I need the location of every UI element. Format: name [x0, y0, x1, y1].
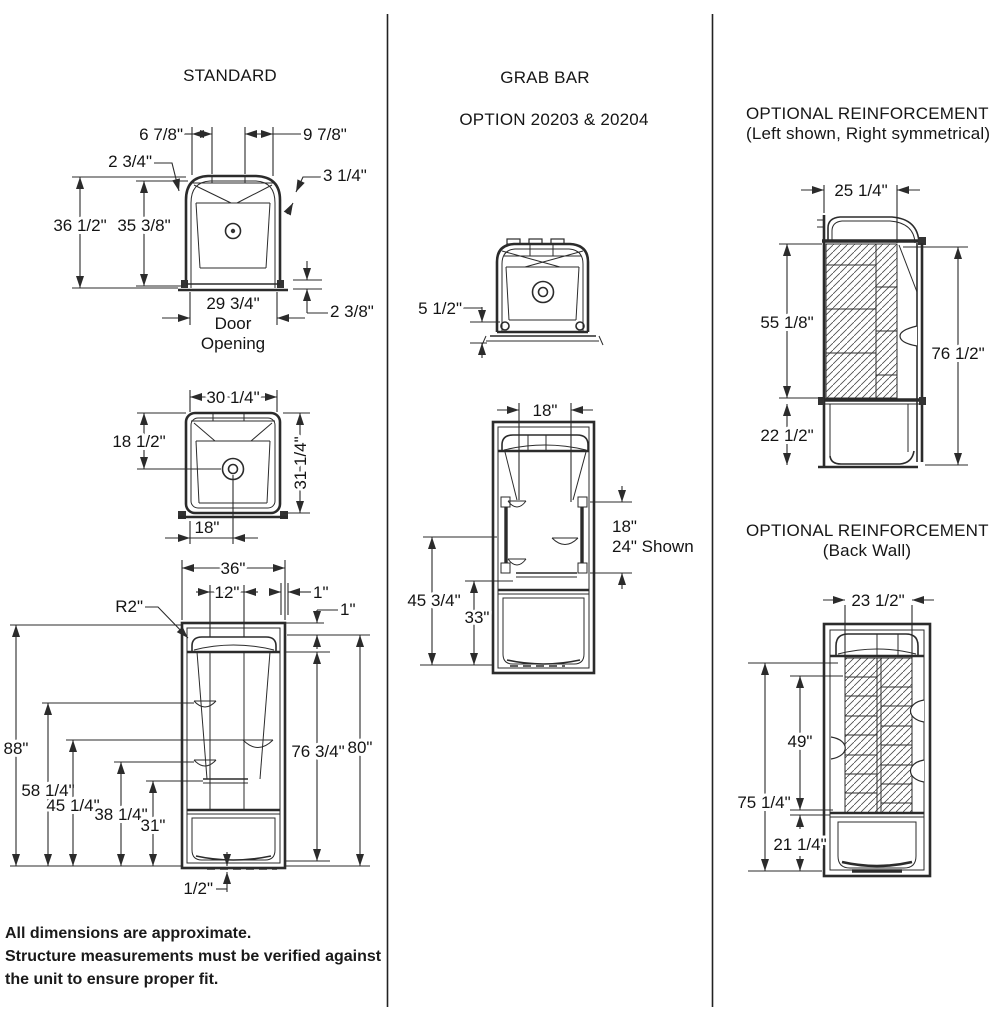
- dim-door-opening-width: 29 3/4": [206, 294, 259, 313]
- dim-lower-mount-height: 33": [465, 608, 490, 627]
- dim-bar-spacing: 18": [533, 401, 558, 420]
- dim-overall-height: 88": [4, 739, 29, 758]
- dim-overall-height: 75 1/4": [737, 793, 790, 812]
- reinforcement-side-view: 25 1/4" 55 1/8" 22 1/2" 76 1/2": [760, 181, 984, 467]
- dim-unit-height: 80": [348, 738, 373, 757]
- grab-bar-mount-plate: [501, 563, 510, 573]
- shelf-profile: [900, 326, 917, 346]
- dim-overall-width: 36": [221, 559, 246, 578]
- shelf: [508, 501, 526, 507]
- dim-lower-height: 21 1/4": [773, 835, 826, 854]
- dim-panel-width: 23 1/2": [851, 591, 904, 610]
- grab-bar-mount-plate: [578, 563, 587, 573]
- technical-drawing: 6 7/8" 9 7/8" 2 3/4" 3 1/4" 36 1/2" 35 3…: [0, 0, 1006, 1024]
- shelf: [243, 740, 273, 748]
- dim-left-corner: 2 3/4": [108, 152, 152, 171]
- dim-drain-depth: 18 1/2": [112, 432, 165, 451]
- dim-center-panel-width: 12": [215, 583, 240, 602]
- dim-panel-height: 55 1/8": [760, 313, 813, 332]
- dim-mount-height: 5 1/2": [418, 299, 462, 318]
- shelf: [911, 700, 925, 722]
- standard-front-view: 6 7/8" 9 7/8" 2 3/4" 3 1/4" 36 1/2" 35 3…: [53, 125, 374, 353]
- dim-upper-mount-height: 45 3/4": [407, 591, 460, 610]
- shelf: [831, 737, 845, 759]
- dim-interior-height: 76 3/4": [291, 742, 344, 761]
- dim-drain-offset: 18": [195, 518, 220, 537]
- dim-right-top-offset: 9 7/8": [303, 125, 347, 144]
- dim-right-corner: 3 1/4": [323, 166, 367, 185]
- standard-plan-view: 30 1/4" 18 1/2" 31 1/4" 18": [112, 388, 310, 544]
- grab-bar-elevation: 18" 18" 24" Shown 45 3/4" 33": [407, 401, 693, 673]
- spec-sheet: STANDARD GRAB BAR OPTION 20203 & 20204 O…: [0, 0, 1006, 1024]
- dim-lower-height: 22 1/2": [760, 426, 813, 445]
- door-opening-label: Opening: [201, 334, 265, 353]
- standard-elevation: 36" 12" 1" 1" R2" 88": [4, 559, 373, 898]
- dim-right-shelf-height: 45 1/4": [46, 796, 99, 815]
- reinforcement-back-view: 23 1/2" 75 1/4" 49" 21 1/4": [737, 591, 934, 876]
- shelf: [194, 701, 216, 707]
- dim-top-lip: 1": [340, 600, 356, 619]
- dim-threshold: 1/2": [183, 879, 213, 898]
- dim-top-width: 30 1/4": [206, 388, 259, 407]
- drain: [533, 282, 554, 303]
- dim-towel-bar-height: 31": [141, 816, 166, 835]
- grab-bar-mount-plate: [578, 497, 587, 507]
- shelf: [194, 760, 216, 766]
- dim-corner-radius: R2": [115, 597, 143, 616]
- dim-overall-height: 76 1/2": [931, 344, 984, 363]
- shelf: [508, 559, 526, 565]
- dim-interior-height: 35 3/8": [117, 216, 170, 235]
- dim-bar-length: 18": [612, 517, 637, 536]
- dim-edge-offset: 1": [313, 583, 329, 602]
- dim-left-top-offset: 6 7/8": [139, 125, 183, 144]
- dim-overall-depth: 31 1/4": [291, 436, 310, 489]
- door-opening-label: Door: [215, 314, 252, 333]
- shelf: [552, 538, 578, 545]
- grab-bar-plan-view: 5 1/2": [418, 239, 603, 358]
- dim-panel-height: 49": [788, 732, 813, 751]
- dim-bar-length-shown: 24" Shown: [612, 537, 694, 556]
- dim-base-height: 2 3/8": [330, 302, 374, 321]
- shelf: [911, 760, 925, 782]
- dim-depth: 25 1/4": [834, 181, 887, 200]
- dim-overall-height: 36 1/2": [53, 216, 106, 235]
